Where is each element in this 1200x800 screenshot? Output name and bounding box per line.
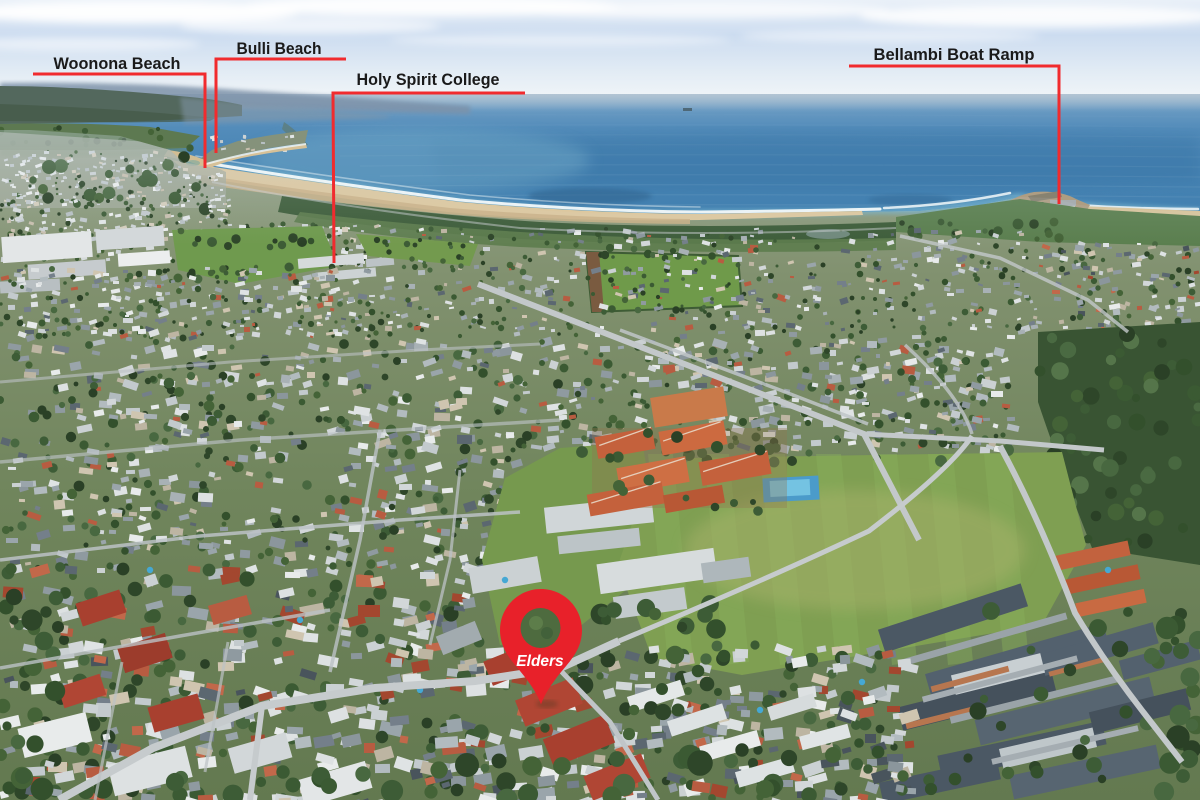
svg-text:Bellambi Boat Ramp: Bellambi Boat Ramp — [874, 46, 1035, 64]
svg-text:Bulli Beach: Bulli Beach — [237, 40, 322, 58]
svg-text:Woonona Beach: Woonona Beach — [54, 55, 181, 73]
svg-text:Elders: Elders — [516, 653, 564, 670]
svg-text:Holy Spirit College: Holy Spirit College — [357, 71, 500, 89]
